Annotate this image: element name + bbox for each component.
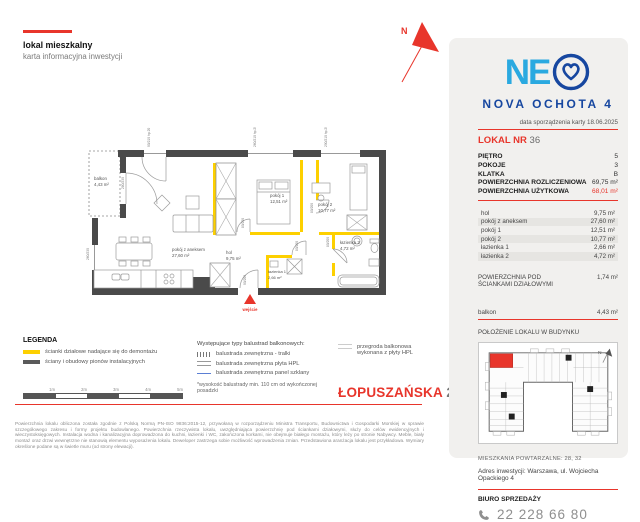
entry-marker-icon <box>244 294 256 304</box>
room-label: łazienka 1 <box>268 269 287 274</box>
repeatable-units: MIESZKANIA POWTARZALNE: 28, 32 <box>478 456 618 462</box>
balcony-area-row: balkon 4,43 m² <box>478 309 618 316</box>
scale-bar: 1m 2m 3m 4m 5m <box>23 387 183 399</box>
partition-legend: przegroda balkonowa wykonana z płyty HPL <box>338 344 438 356</box>
room-label: pokój z aneksem <box>172 247 205 252</box>
legend-item: ścianki działowe nadające się do demonta… <box>23 349 188 355</box>
svg-text:27,60 m²: 27,60 m² <box>172 253 190 258</box>
card-date: data sporządzenia karty 18.06.2025 <box>478 119 618 126</box>
balustrade-title: Występujące typy balustrad balkonowych: <box>197 341 332 347</box>
document-header: lokal mieszkalny karta informacyjna inwe… <box>23 30 122 61</box>
door-swings <box>126 157 347 288</box>
entry-label: wejście <box>242 307 259 312</box>
spec-table: PIĘTRO5 POKOJE3 KLATKAB POWIERZCHNIA ROZ… <box>478 153 618 197</box>
sales-office-label: BIURO SPRZEDAŻY <box>478 496 618 503</box>
legend-item: balustrada zewnętrzna płyta HPL <box>197 361 332 367</box>
legend-item: balustrada zewnętrzna - tralki <box>197 351 332 357</box>
svg-text:4,72 m²: 4,72 m² <box>340 246 355 251</box>
highlighted-unit <box>490 354 513 368</box>
svg-text:80/200: 80/200 <box>326 237 330 247</box>
demolition-wall-swatch <box>23 350 40 355</box>
room-label: pokój 1 <box>270 193 285 198</box>
room-row: pokój z aneksem27,60 m² <box>478 218 618 227</box>
divider-line <box>478 129 618 130</box>
svg-text:12,51 m²: 12,51 m² <box>270 199 288 204</box>
svg-text:260/230: 260/230 <box>86 248 90 260</box>
svg-text:9,75 m²: 9,75 m² <box>226 256 241 261</box>
phone-number[interactable]: 22 228 66 80 <box>497 507 588 522</box>
svg-text:2,66 m²: 2,66 m² <box>268 275 282 280</box>
room-row: pokój 112,51 m² <box>478 226 618 235</box>
building-location-map: N <box>478 342 618 444</box>
info-panel: NE NOVA OCHOTA 4 data sporządzenia karty… <box>449 38 628 458</box>
investment-info-card: { "header": { "title": "lokal mieszkalny… <box>0 0 640 480</box>
north-label: N <box>401 26 408 36</box>
spec-row: POWIERZCHNIA ROZLICZENIOWA69,75 m² <box>478 179 618 188</box>
svg-text:80/200: 80/200 <box>310 203 314 213</box>
room-label: łazienka 2 <box>340 240 360 245</box>
svg-text:4,43 m²: 4,43 m² <box>94 182 109 187</box>
legal-disclaimer: Powierzchnia lokalu obliczona została zg… <box>15 421 424 450</box>
legend-title: LEGENDA <box>23 337 188 344</box>
room-label: hol <box>226 250 232 255</box>
svg-text:280/230: 280/230 <box>121 177 125 189</box>
divider-line <box>15 404 422 405</box>
spec-row: PIĘTRO5 <box>478 153 618 162</box>
svg-text:90/200: 90/200 <box>243 275 247 285</box>
room-row: pokój 210,77 m² <box>478 235 618 244</box>
balustrade-note: *wysokość balustrady min. 110 cm od wyko… <box>197 382 332 394</box>
logo-ne-text: NE <box>505 55 550 90</box>
room-table: hol9,75 m² pokój z aneksem27,60 m² pokój… <box>478 209 618 261</box>
svg-text:80/200: 80/200 <box>295 241 299 251</box>
divider-line <box>478 489 618 490</box>
document-subtitle: karta informacyjna inwestycji <box>23 52 122 61</box>
project-name: NOVA OCHOTA 4 <box>478 97 618 111</box>
room-row: hol9,75 m² <box>478 209 618 218</box>
svg-text:200/210 hp 20: 200/210 hp 20 <box>324 127 328 147</box>
balcony-partition-symbol <box>338 344 352 349</box>
document-title: lokal mieszkalny <box>23 40 122 50</box>
legend-item: ściany i obudowy pionów instalacyjnych <box>23 359 188 365</box>
glass-panel-symbol <box>197 373 211 374</box>
phone-icon <box>478 509 490 521</box>
location-title: POŁOŻENIE LOKALU W BUDYNKU <box>478 329 618 336</box>
room-label: balkon <box>94 176 107 181</box>
room-label: pokój 2 <box>318 202 333 207</box>
svg-text:260/210 hp 20: 260/210 hp 20 <box>253 127 257 147</box>
hpl-symbol <box>197 361 211 366</box>
room-row: łazienka 24,72 m² <box>478 252 618 261</box>
investment-address: Adres inwestycji: Warszawa, ul. Wojciech… <box>478 468 618 482</box>
heart-circle-icon <box>551 52 591 92</box>
unit-number-row: LOKAL NR 36 <box>478 135 618 146</box>
accent-bar <box>23 30 72 33</box>
floor-plan: wejście balkon4,43 m² pokój z aneksem27,… <box>86 127 388 315</box>
spec-row: POKOJE3 <box>478 162 618 171</box>
spec-row: KLATKAB <box>478 171 618 180</box>
legend-item: balustrada zewnętrzna panel szklany <box>197 370 332 376</box>
structural-wall-swatch <box>23 360 40 365</box>
spec-row: POWIERZCHNIA UŻYTKOWA68,01 m² <box>478 188 618 197</box>
svg-text:90/210 hp 20: 90/210 hp 20 <box>147 128 151 147</box>
divider-line <box>478 319 618 320</box>
svg-text:80/200: 80/200 <box>241 218 245 228</box>
neo-logo: NE <box>478 50 618 94</box>
furniture <box>94 164 379 288</box>
north-arrow-icon: N <box>393 14 448 89</box>
partition-area-row: POWIERZCHNIA POD ŚCIANKAMI DZIAŁOWYMI 1,… <box>478 274 618 289</box>
svg-text:10,77 m²: 10,77 m² <box>318 208 336 213</box>
divider-line <box>478 200 618 201</box>
balusters-symbol <box>197 352 211 357</box>
legend: LEGENDA ścianki działowe nadające się do… <box>23 337 188 399</box>
balustrade-legend: Występujące typy balustrad balkonowych: … <box>197 341 332 394</box>
phone-row[interactable]: 22 228 66 80 <box>478 507 618 522</box>
room-row: łazienka 12,66 m² <box>478 243 618 252</box>
svg-text:N: N <box>598 350 602 356</box>
